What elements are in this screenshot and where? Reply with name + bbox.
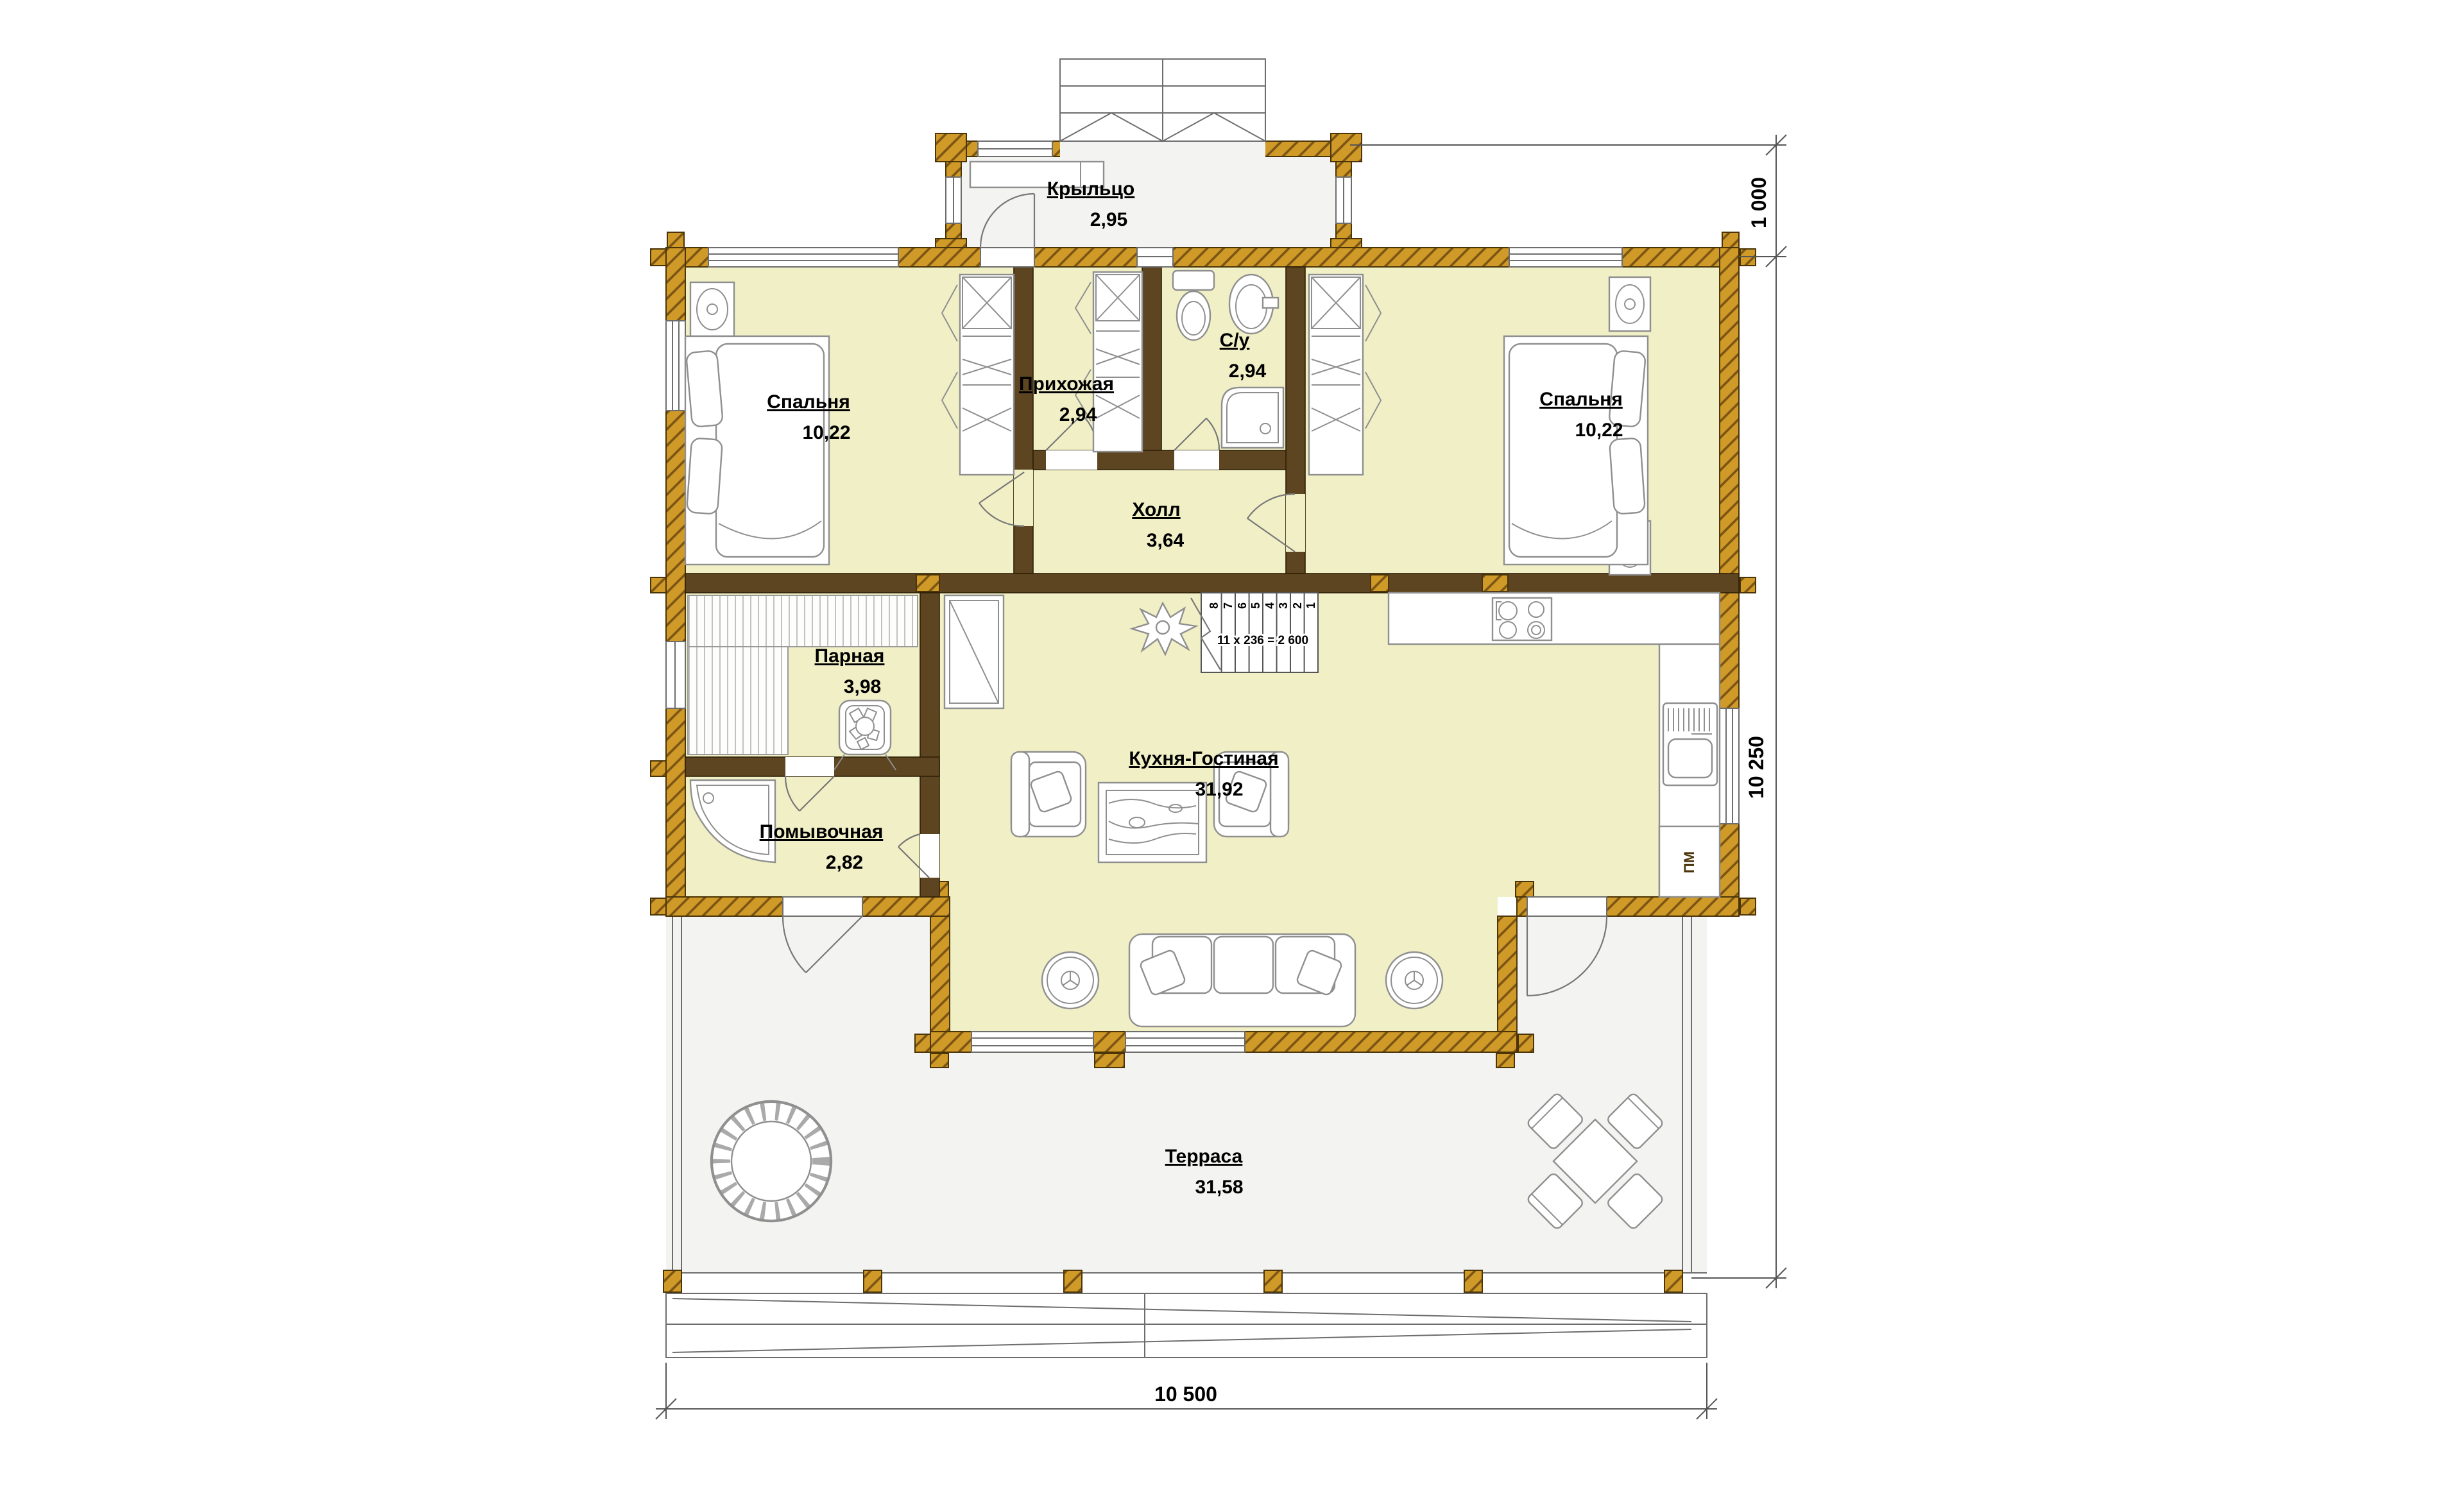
dishwasher: ПМ: [1659, 826, 1720, 897]
svg-text:Холл: Холл: [1132, 499, 1180, 520]
svg-text:4: 4: [1263, 602, 1276, 609]
nightstand-icon: [690, 282, 734, 336]
svg-text:Парная: Парная: [815, 645, 885, 667]
svg-text:Спальня: Спальня: [767, 391, 850, 413]
svg-text:31,58: 31,58: [1195, 1177, 1243, 1198]
svg-text:31,92: 31,92: [1195, 779, 1243, 800]
svg-text:Прихожая: Прихожая: [1019, 373, 1114, 395]
svg-text:3,98: 3,98: [844, 676, 881, 697]
dim-total-width: 10 500: [1154, 1383, 1217, 1406]
svg-text:1: 1: [1305, 602, 1317, 609]
svg-text:10,22: 10,22: [802, 422, 850, 443]
window-right-kitchen: [1720, 708, 1739, 824]
side-table-icon: [1042, 952, 1099, 1009]
armchair-icon: [1011, 752, 1086, 837]
double-bed-icon: [1504, 336, 1648, 565]
sauna-bench: [688, 647, 788, 754]
kitchen-sink-icon: [1663, 703, 1717, 785]
coffee-table-icon: [1099, 783, 1206, 862]
svg-text:Спальня: Спальня: [1539, 389, 1623, 410]
window-top-bedroom-right: [1509, 248, 1622, 267]
svg-text:2,94: 2,94: [1229, 361, 1267, 382]
window-top-small: [1137, 248, 1173, 267]
svg-text:10,22: 10,22: [1575, 420, 1623, 441]
dim-house-depth: 10 250: [1745, 736, 1768, 799]
svg-text:7: 7: [1222, 602, 1235, 609]
svg-text:2: 2: [1291, 602, 1304, 609]
floor-plan: ПМ: [0, 0, 2464, 1491]
stairs: 8 7 6 5 4 3 2 1 11 x 236 = 2 600: [1191, 593, 1318, 672]
cabinet-icon: [945, 595, 1004, 708]
kitchen-counter: [1389, 593, 1720, 644]
svg-text:Крыльцо: Крыльцо: [1047, 178, 1135, 200]
svg-text:6: 6: [1236, 602, 1249, 609]
terrace-steps: [666, 1293, 1707, 1358]
svg-text:2,82: 2,82: [826, 852, 863, 873]
toilet-icon: [1173, 271, 1214, 340]
dishwasher-label: ПМ: [1681, 851, 1697, 873]
kitchen-stove-icon: [1493, 598, 1552, 640]
svg-text:3: 3: [1277, 602, 1290, 609]
svg-text:Терраса: Терраса: [1165, 1146, 1243, 1167]
stairs-formula: 11 x 236 = 2 600: [1217, 634, 1308, 647]
window-bay-right: [1125, 1032, 1245, 1052]
svg-text:2,95: 2,95: [1090, 209, 1127, 230]
terrace-posts: [663, 1270, 1682, 1292]
nightstand-icon: [1609, 277, 1650, 331]
svg-text:Кухня-Гостиная: Кухня-Гостиная: [1129, 748, 1278, 769]
svg-text:3,64: 3,64: [1147, 530, 1185, 551]
window-left-bedroom: [666, 321, 685, 411]
dim-porch-depth: 1 000: [1747, 177, 1770, 228]
side-table-icon: [1386, 952, 1442, 1009]
svg-text:5: 5: [1249, 602, 1262, 609]
svg-text:С/у: С/у: [1220, 330, 1250, 351]
entrance-steps: [1060, 59, 1265, 141]
hall-floor: [1014, 470, 1286, 574]
shower-icon: [1222, 388, 1283, 448]
sofa-icon: [1129, 934, 1355, 1027]
svg-text:8: 8: [1208, 602, 1220, 609]
double-bed-icon: [685, 336, 829, 565]
svg-text:2,94: 2,94: [1059, 404, 1097, 425]
window-left-sauna: [666, 642, 685, 708]
sauna-bench: [688, 595, 918, 647]
svg-text:Помывочная: Помывочная: [760, 821, 884, 842]
porch: [936, 59, 1362, 269]
hot-tub-icon: [711, 1101, 832, 1222]
window-top-bedroom-left: [708, 248, 898, 267]
window-bay-left: [971, 1032, 1093, 1052]
